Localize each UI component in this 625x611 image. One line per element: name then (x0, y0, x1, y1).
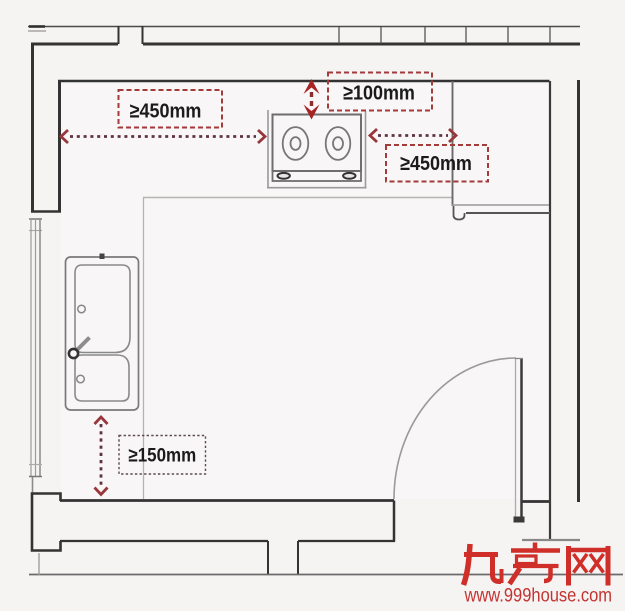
svg-text:≥450mm: ≥450mm (400, 152, 472, 175)
svg-text:≥450mm: ≥450mm (130, 99, 202, 122)
svg-text:≥150mm: ≥150mm (128, 443, 196, 465)
svg-text:www.999house.com: www.999house.com (464, 584, 612, 606)
svg-text:≥100mm: ≥100mm (343, 81, 415, 104)
